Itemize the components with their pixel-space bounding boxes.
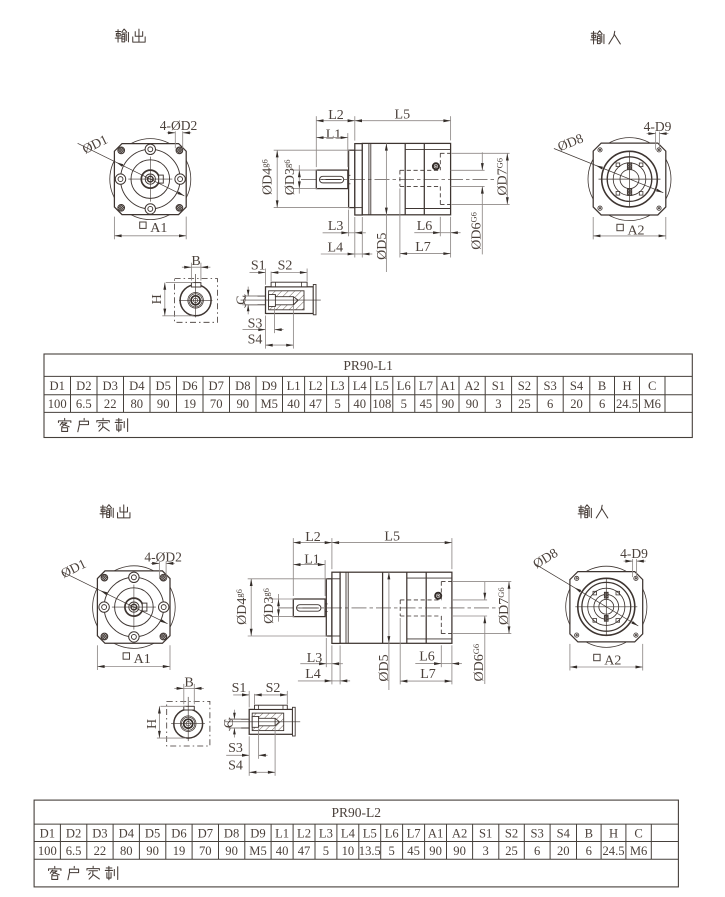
svg-text:S1: S1 [232, 681, 247, 696]
svg-text:L7: L7 [407, 826, 421, 840]
svg-text:L5: L5 [375, 379, 389, 393]
svg-text:90: 90 [157, 397, 170, 411]
svg-text:S4: S4 [570, 379, 584, 393]
svg-text:90: 90 [146, 844, 159, 858]
svg-text:80: 80 [120, 844, 133, 858]
svg-text:C: C [634, 826, 642, 840]
svg-text:80: 80 [131, 397, 144, 411]
svg-text:S1: S1 [492, 379, 505, 393]
svg-text:M5: M5 [249, 844, 267, 858]
svg-text:90: 90 [453, 844, 466, 858]
svg-text:47: 47 [298, 844, 311, 858]
svg-text:6: 6 [599, 397, 605, 411]
svg-text:ØD3g6: ØD3g6 [282, 160, 298, 196]
svg-text:100: 100 [48, 397, 67, 411]
svg-text:24.5: 24.5 [616, 397, 638, 411]
svg-text:M5: M5 [260, 397, 278, 411]
svg-text:L6: L6 [385, 826, 399, 840]
svg-text:A1: A1 [150, 221, 167, 236]
svg-text:70: 70 [210, 397, 223, 411]
svg-text:D3: D3 [102, 379, 117, 393]
svg-text:A2: A2 [627, 223, 644, 238]
svg-text:108: 108 [372, 397, 391, 411]
svg-text:H: H [622, 379, 631, 393]
svg-text:47: 47 [309, 397, 322, 411]
svg-text:S2: S2 [266, 681, 281, 696]
svg-text:19: 19 [184, 397, 197, 411]
svg-text:A2: A2 [452, 826, 467, 840]
svg-text:S3: S3 [531, 826, 544, 840]
svg-text:D4: D4 [129, 379, 145, 393]
svg-text:D6: D6 [182, 379, 197, 393]
svg-text:L4: L4 [341, 826, 356, 840]
svg-text:L6: L6 [419, 650, 435, 665]
svg-text:L5: L5 [363, 826, 377, 840]
svg-text:D8: D8 [224, 826, 239, 840]
svg-text:19: 19 [173, 844, 186, 858]
svg-text:90: 90 [237, 397, 250, 411]
svg-text:5: 5 [401, 397, 407, 411]
svg-text:L3: L3 [328, 219, 344, 234]
svg-text:ØD3g6: ØD3g6 [261, 588, 277, 624]
svg-text:ØD8: ØD8 [530, 545, 560, 572]
svg-text:C: C [234, 296, 249, 305]
svg-text:3: 3 [483, 844, 489, 858]
svg-text:D6: D6 [171, 826, 186, 840]
svg-text:C: C [222, 719, 237, 728]
svg-text:ØD1: ØD1 [80, 132, 110, 157]
svg-text:D9: D9 [250, 826, 265, 840]
svg-text:ØD5: ØD5 [375, 233, 390, 260]
svg-text:5: 5 [334, 397, 340, 411]
svg-text:45: 45 [407, 844, 420, 858]
svg-text:H: H [145, 719, 160, 729]
svg-text:A1: A1 [428, 826, 443, 840]
svg-text:L7: L7 [415, 240, 431, 255]
svg-text:L4: L4 [353, 379, 368, 393]
svg-text:S3: S3 [228, 741, 243, 756]
svg-text:45: 45 [420, 397, 433, 411]
svg-text:90: 90 [442, 397, 455, 411]
svg-text:S2: S2 [505, 826, 518, 840]
svg-text:B: B [585, 826, 593, 840]
svg-text:PR90-L1: PR90-L1 [343, 358, 393, 373]
svg-text:25: 25 [505, 844, 518, 858]
svg-text:D5: D5 [155, 379, 170, 393]
svg-text:L6: L6 [397, 379, 411, 393]
svg-text:M6: M6 [643, 397, 661, 411]
svg-text:40: 40 [353, 397, 366, 411]
svg-text:D2: D2 [76, 379, 91, 393]
svg-text:A2: A2 [464, 379, 479, 393]
svg-text:A1: A1 [134, 652, 151, 667]
svg-text:L1: L1 [304, 552, 320, 567]
svg-text:24.5: 24.5 [602, 844, 624, 858]
svg-text:D1: D1 [49, 379, 64, 393]
svg-text:ØD5: ØD5 [377, 654, 392, 681]
svg-text:13.5: 13.5 [359, 844, 381, 858]
svg-text:90: 90 [466, 397, 479, 411]
svg-text:L1: L1 [275, 826, 289, 840]
svg-text:ØD4g6: ØD4g6 [234, 589, 250, 625]
svg-text:D3: D3 [92, 826, 107, 840]
svg-text:70: 70 [199, 844, 212, 858]
svg-text:H: H [150, 294, 165, 304]
svg-text:L3: L3 [319, 826, 333, 840]
svg-text:S4: S4 [557, 826, 571, 840]
svg-text:ØD4g6: ØD4g6 [260, 159, 276, 195]
svg-text:A2: A2 [604, 653, 621, 668]
svg-text:L2: L2 [309, 379, 323, 393]
svg-text:6.5: 6.5 [76, 397, 92, 411]
svg-text:H: H [609, 826, 618, 840]
svg-text:D4: D4 [119, 826, 135, 840]
svg-text:6: 6 [534, 844, 540, 858]
svg-text:B: B [598, 379, 606, 393]
svg-text:22: 22 [104, 397, 117, 411]
svg-text:20: 20 [557, 844, 570, 858]
svg-text:S1: S1 [479, 826, 492, 840]
svg-text:D5: D5 [145, 826, 160, 840]
svg-text:90: 90 [429, 844, 442, 858]
svg-text:L4: L4 [328, 240, 344, 255]
svg-text:S3: S3 [544, 379, 557, 393]
svg-text:S4: S4 [228, 759, 243, 774]
svg-text:S2: S2 [518, 379, 531, 393]
svg-text:4-ØD2: 4-ØD2 [144, 550, 182, 565]
svg-text:A1: A1 [440, 379, 455, 393]
svg-text:L7: L7 [419, 379, 433, 393]
svg-text:20: 20 [570, 397, 583, 411]
svg-text:5: 5 [389, 844, 395, 858]
svg-text:L1: L1 [287, 379, 301, 393]
svg-text:6: 6 [547, 397, 553, 411]
svg-text:D1: D1 [40, 826, 55, 840]
svg-text:ØD8: ØD8 [555, 130, 585, 154]
svg-text:D9: D9 [261, 379, 276, 393]
svg-text:ØD7G6: ØD7G6 [494, 158, 510, 196]
svg-text:L3: L3 [331, 379, 345, 393]
svg-text:S4: S4 [248, 332, 263, 347]
svg-text:22: 22 [94, 844, 107, 858]
svg-text:6: 6 [586, 844, 592, 858]
svg-text:4-D9: 4-D9 [620, 546, 648, 561]
svg-text:D8: D8 [235, 379, 250, 393]
svg-text:40: 40 [287, 397, 300, 411]
svg-text:D2: D2 [66, 826, 81, 840]
svg-text:L2: L2 [297, 826, 311, 840]
svg-text:6.5: 6.5 [66, 844, 82, 858]
svg-text:4-ØD2: 4-ØD2 [160, 118, 198, 133]
svg-text:100: 100 [38, 844, 57, 858]
svg-text:L6: L6 [417, 219, 433, 234]
svg-text:D7: D7 [198, 826, 213, 840]
svg-text:3: 3 [495, 397, 501, 411]
svg-text:S2: S2 [278, 259, 293, 274]
svg-text:L4: L4 [305, 667, 321, 682]
svg-text:L1: L1 [326, 128, 342, 143]
svg-text:25: 25 [518, 397, 531, 411]
svg-text:C: C [648, 379, 656, 393]
svg-text:5: 5 [323, 844, 329, 858]
svg-text:10: 10 [342, 844, 355, 858]
svg-text:4-D9: 4-D9 [644, 119, 672, 134]
svg-text:PR90-L2: PR90-L2 [331, 805, 381, 820]
svg-text:D7: D7 [208, 379, 223, 393]
svg-text:40: 40 [276, 844, 289, 858]
svg-text:90: 90 [225, 844, 238, 858]
svg-text:L7: L7 [420, 667, 436, 682]
svg-text:M6: M6 [630, 844, 648, 858]
